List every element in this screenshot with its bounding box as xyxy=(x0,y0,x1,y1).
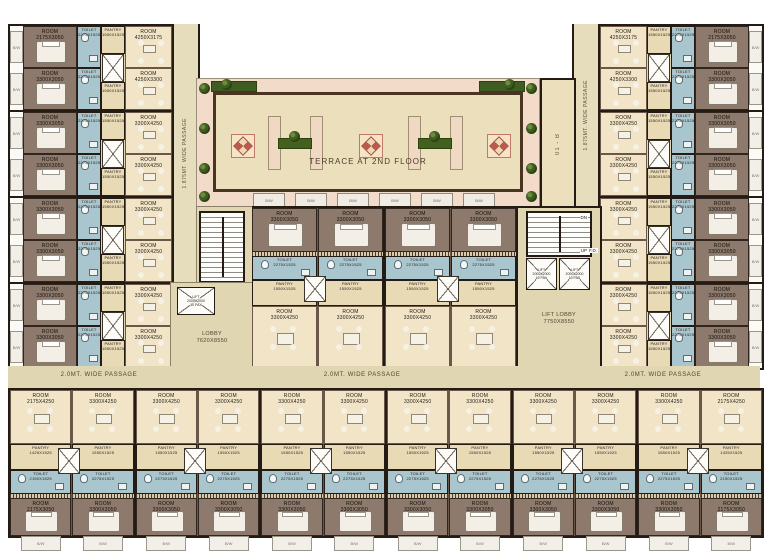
room-label: ROOM3300X3050 xyxy=(137,499,196,514)
fire-door-label: F.D. xyxy=(588,248,598,253)
balcony: B/W xyxy=(146,536,186,551)
plant-icon xyxy=(221,79,232,90)
pantry: PANTRY1550X1525 xyxy=(449,444,510,470)
toilet: TOILET2275X1525 xyxy=(72,470,133,494)
room: ROOM3300X3050 xyxy=(695,68,749,110)
balcony: B/W xyxy=(463,193,495,207)
passage-label-left: 2.0MT. WIDE PASSAGE xyxy=(61,372,138,378)
room-label: PANTRY1550X1525 xyxy=(102,27,124,37)
room-label: ROOM3300X4250 xyxy=(126,199,171,214)
room-column: ROOM3300X3050ROOM3300X3050 xyxy=(23,112,77,196)
room-label: PANTRY1550X1525 xyxy=(102,83,124,93)
shaft xyxy=(102,226,124,254)
pantry: PANTRY1550X1525 xyxy=(647,340,671,368)
balcony-column: B/WB/W xyxy=(10,112,23,196)
toilet-column: TOILET2275X1525TOILET2275X1525 xyxy=(77,284,101,368)
plant-icon xyxy=(504,79,515,90)
toilet: TOILET2275X1525 xyxy=(671,26,695,68)
shaft xyxy=(102,140,124,168)
room-label: ROOM3300X4250 xyxy=(126,113,171,128)
toilet: TOILET2275X1525 xyxy=(77,240,101,282)
balcony: B/W xyxy=(649,536,689,551)
room-label: ROOM3300X3050 xyxy=(24,199,76,214)
staircase-right: DN UP xyxy=(526,211,592,257)
room: ROOM3300X4250 xyxy=(125,198,172,240)
pantry: PANTRY1550X1525 xyxy=(575,444,636,470)
pantry-column: PANTRY1550X1525PANTRY1550X1525 xyxy=(647,26,671,110)
room-label: ROOM3300X3050 xyxy=(696,241,748,256)
wing-module: B/WB/WROOM3300X3050ROOM3300X3050TOILET22… xyxy=(600,198,762,284)
balcony: B/W xyxy=(523,536,563,551)
room: ROOM3300X3050 xyxy=(575,498,636,536)
room: ROOM3300X4250 xyxy=(513,390,574,444)
pantry: PANTRY1550X1525 xyxy=(647,112,671,140)
room-column: ROOM3300X4250ROOM3300X4250 xyxy=(600,112,647,196)
room: ROOM2175X3050 xyxy=(10,498,71,536)
room: ROOM3300X4250 xyxy=(600,326,647,368)
room-label: TOILET2275X1525 xyxy=(253,257,316,267)
toilet: TOILET2275X1525 xyxy=(671,68,695,110)
plant-icon xyxy=(199,83,210,94)
room: ROOM3300X3050 xyxy=(695,198,749,240)
shaft xyxy=(102,312,124,340)
room: ROOM3300X4250 xyxy=(136,390,197,444)
room: ROOM4250X3300 xyxy=(600,68,647,110)
balcony: B/W xyxy=(21,536,61,551)
room-label: PANTRY1550X1525 xyxy=(648,199,670,209)
plant-icon xyxy=(429,131,440,142)
pantry-column: PANTRY1550X1525PANTRY1550X1525 xyxy=(101,198,125,282)
room-label: ROOM3300X3050 xyxy=(199,499,258,514)
terrace: TERRACE AT 2ND FLOOR B/WB/WB/WB/WB/WB/W xyxy=(196,78,540,208)
room-label: PANTRY1550X1525 xyxy=(648,113,670,123)
room-label: TOILET2275X1525 xyxy=(576,471,635,481)
room-label: ROOM3300X4250 xyxy=(73,391,132,406)
toilet: TOILET2275X1525 xyxy=(671,112,695,154)
room: ROOM3300X3050 xyxy=(695,154,749,196)
room-label: ROOM3300X4250 xyxy=(601,241,646,256)
room: ROOM3300X3050 xyxy=(385,208,450,252)
lobby: LIFT 2000X2000 10 PAX LOBBY 7620X8550 xyxy=(170,282,254,368)
room-label: ROOM3300X4250 xyxy=(199,391,258,406)
passage-label-center: 2.0MT. WIDE PASSAGE xyxy=(324,372,401,378)
room-label: ROOM4250X3175 xyxy=(126,27,171,42)
room-column: ROOM3300X3050ROOM3300X3050 xyxy=(23,284,77,368)
wing-module: B/WB/WROOM2175X3050ROOM3300X3050TOILET22… xyxy=(10,26,172,112)
room-label: ROOM3300X3050 xyxy=(24,69,76,84)
left-wing: B/WB/WROOM2175X3050ROOM3300X3050TOILET22… xyxy=(8,24,174,370)
pantry: PANTRY1550X1525 xyxy=(101,284,125,312)
wing-module: B/WB/WROOM3300X3050ROOM3300X3050TOILET22… xyxy=(600,284,762,368)
pantry: PANTRY1550X1525 xyxy=(101,82,125,110)
room: ROOM3300X3050 xyxy=(23,154,77,196)
room-column: ROOM3300X3050ROOM3300X3050 xyxy=(695,112,749,196)
room-column: ROOM4250X3175ROOM4250X3300 xyxy=(125,26,172,110)
room-label: ROOM3300X4250 xyxy=(576,391,635,406)
room-label: ROOM3300X3050 xyxy=(450,499,509,514)
balcony: B/W xyxy=(295,193,327,207)
room-label: ROOM3300X4250 xyxy=(262,391,321,406)
lift-capacity: 10 PAX xyxy=(536,276,548,280)
balcony-column: B/WB/W xyxy=(749,284,762,368)
room: ROOM2175X3050 xyxy=(695,26,749,68)
balcony: B/W xyxy=(337,193,369,207)
pantry-column: PANTRY1550X1525PANTRY1550X1525 xyxy=(101,26,125,110)
room-label: PANTRY1550X1525 xyxy=(648,255,670,265)
guest-unit: ROOM3300X4250PANTRY1550X1525TOILET2275X1… xyxy=(261,390,323,536)
room: ROOM3300X3050 xyxy=(324,498,385,536)
room-label: TOILET2275X1525 xyxy=(672,285,694,295)
pantry: PANTRY1425X1525 xyxy=(701,444,762,470)
room: ROOM3300X4250 xyxy=(125,284,172,326)
room-column: ROOM2175X3050ROOM3300X3050 xyxy=(695,26,749,110)
balcony-column: B/WB/W xyxy=(10,26,23,110)
shaft xyxy=(687,448,709,474)
plant-icon xyxy=(199,163,210,174)
room-label: PANTRY1550X1525 xyxy=(648,341,670,351)
toilet: TOILET2275X1525 xyxy=(449,470,510,494)
toilet: TOILET2150X1525 xyxy=(701,470,762,494)
room-label: TOILET2275X1525 xyxy=(78,327,100,337)
lift-lobby-title: LIFT LOBBY xyxy=(518,312,600,319)
pantry: PANTRY1550X1525 xyxy=(647,254,671,282)
passage-label-right: 2.0MT. WIDE PASSAGE xyxy=(625,372,702,378)
room-label: PANTRY1550X1525 xyxy=(102,341,124,351)
balcony: B/W xyxy=(10,159,23,191)
balcony: B/W xyxy=(334,536,374,551)
passage-vertical-right-label: 1.875MT. WIDE PASSAGE xyxy=(583,80,589,150)
room: ROOM3300X3050 xyxy=(136,498,197,536)
room: ROOM3300X4250 xyxy=(198,390,259,444)
room-label: ROOM3300X3050 xyxy=(262,499,321,514)
toilet: TOILET2275X1525 xyxy=(324,470,385,494)
toilet-column: TOILET2275X1525TOILET2275X1525 xyxy=(77,112,101,196)
room-label: ROOM3300X4250 xyxy=(601,199,646,214)
balcony: B/W xyxy=(749,289,762,321)
room-label: ROOM4250X3300 xyxy=(126,69,171,84)
room-label: ROOM3300X4250 xyxy=(639,391,698,406)
balcony: B/W xyxy=(379,193,411,207)
plant-icon xyxy=(526,163,537,174)
room: ROOM3300X4250 xyxy=(324,390,385,444)
pantry: PANTRY1550X1525 xyxy=(647,198,671,226)
room-label: TOILET2275X1525 xyxy=(672,69,694,79)
guest-unit: ROOM3300X3050TOILET2275X1525PANTRY1550X1… xyxy=(451,208,516,368)
toilet-column: TOILET2275X1525TOILET2275X1525 xyxy=(77,26,101,110)
room-label: ROOM3300X4250 xyxy=(514,391,573,406)
pantry: PANTRY1550X1525 xyxy=(324,444,385,470)
pantry-column: PANTRY1550X1525PANTRY1550X1525 xyxy=(101,112,125,196)
pantry: PANTRY1550X1525 xyxy=(318,280,383,306)
room-label: TOILET2275X1525 xyxy=(78,113,100,123)
room-label: ROOM3300X4250 xyxy=(253,307,316,322)
room-label: ROOM2175X4250 xyxy=(11,391,70,406)
toilet-column: TOILET2275X1525TOILET2275X1525 xyxy=(671,284,695,368)
room-label: ROOM3300X4250 xyxy=(452,307,515,322)
floor-plan-sheet: 1.875MT. WIDE PASSAGE 1.875MT. WIDE PASS… xyxy=(0,0,768,552)
room-label: PANTRY1550X1525 xyxy=(648,169,670,179)
room: ROOM3300X3050 xyxy=(318,208,383,252)
toilet: TOILET2275X1525 xyxy=(77,26,101,68)
room-label: ROOM3300X4250 xyxy=(126,241,171,256)
shaft xyxy=(648,226,670,254)
room: ROOM2175X4250 xyxy=(701,390,762,444)
room: ROOM3300X3050 xyxy=(638,498,699,536)
room: ROOM3300X4250 xyxy=(600,112,647,154)
room: ROOM3300X3050 xyxy=(513,498,574,536)
room-label: ROOM3300X4250 xyxy=(388,391,447,406)
room-label: ROOM3300X4250 xyxy=(137,391,196,406)
balcony: B/W xyxy=(749,159,762,191)
room-label: ROOM3300X3050 xyxy=(696,327,748,342)
guest-unit: ROOM3300X3050TOILET2275X1525PANTRY1550X1… xyxy=(318,208,385,368)
room-label: TOILET2275X1525 xyxy=(452,257,515,267)
annex-01b: 01 - B xyxy=(540,78,576,210)
pantry: PANTRY1550X1525 xyxy=(101,254,125,282)
room: ROOM3300X3050 xyxy=(695,112,749,154)
lift-capacity: 10 PAX xyxy=(569,276,581,280)
balcony: B/W xyxy=(253,193,285,207)
guest-unit: ROOM3300X4250PANTRY1550X1525TOILET2275X1… xyxy=(198,390,261,536)
annex-label: 01 - B xyxy=(555,133,561,155)
wing-module: B/WB/WROOM2175X3050ROOM3300X3050TOILET22… xyxy=(600,26,762,112)
room-label: TOILET2275X1525 xyxy=(199,471,258,481)
balcony: B/W xyxy=(749,117,762,149)
pantry: PANTRY1550X1525 xyxy=(451,280,516,306)
room: ROOM3300X4250 xyxy=(125,240,172,282)
wing-module: B/WB/WROOM3300X3050ROOM3300X3050TOILET22… xyxy=(600,112,762,198)
room-label: ROOM3300X4250 xyxy=(319,307,382,322)
shaft xyxy=(648,312,670,340)
lobby-dim: 7620X8550 xyxy=(171,338,253,345)
room-label: PANTRY1550X1525 xyxy=(73,445,132,455)
guest-unit: ROOM3300X4250PANTRY1550X1525TOILET2275X1… xyxy=(387,390,449,536)
room-label: TOILET2275X1525 xyxy=(672,199,694,209)
room-label: ROOM3300X3050 xyxy=(386,209,449,224)
room: ROOM3300X4250 xyxy=(600,154,647,196)
pantry: PANTRY1550X1525 xyxy=(647,82,671,110)
room-label: PANTRY1550X1525 xyxy=(319,281,382,291)
wing-module: B/WB/WROOM3300X3050ROOM3300X3050TOILET22… xyxy=(10,112,172,198)
balcony: B/W xyxy=(460,536,500,551)
room: ROOM3300X4250 xyxy=(125,326,172,368)
room: ROOM3300X3050 xyxy=(451,208,516,252)
room-label: ROOM3300X4250 xyxy=(450,391,509,406)
pantry: PANTRY1550X1525 xyxy=(101,198,125,226)
room: ROOM3300X3050 xyxy=(72,498,133,536)
room-label: ROOM3300X3050 xyxy=(388,499,447,514)
toilet-column: TOILET2275X1525TOILET2275X1525 xyxy=(671,112,695,196)
room: ROOM3300X4250 xyxy=(387,390,448,444)
balcony: B/W xyxy=(749,245,762,277)
lobby-label: LOBBY 7620X8550 xyxy=(171,331,253,345)
room: ROOM3300X4250 xyxy=(125,112,172,154)
room-label: ROOM3300X3050 xyxy=(696,199,748,214)
right-wing: B/WB/WROOM2175X3050ROOM3300X3050TOILET22… xyxy=(598,24,764,370)
room-label: ROOM3300X4250 xyxy=(601,113,646,128)
pantry: PANTRY1550X1525 xyxy=(647,284,671,312)
guest-unit: ROOM2175X4250PANTRY1425X1525TOILET2150X1… xyxy=(10,390,72,536)
planter-bed xyxy=(479,81,525,92)
shaft xyxy=(435,448,457,474)
room-label: TOILET2275X1525 xyxy=(78,69,100,79)
pantry: PANTRY1550X1525 xyxy=(101,168,125,196)
room-label: TOILET2275X1525 xyxy=(672,113,694,123)
shaft xyxy=(437,276,459,302)
room-column: ROOM2175X3050ROOM3300X3050 xyxy=(23,26,77,110)
balcony: B/W xyxy=(209,536,249,551)
wing-module: B/WB/WROOM3300X3050ROOM3300X3050TOILET22… xyxy=(10,284,172,368)
lift-lobby-dim: 7750X8550 xyxy=(518,319,600,326)
guest-unit: ROOM3300X4250PANTRY1550X1525TOILET2275X1… xyxy=(575,390,638,536)
room-label: PANTRY1550X1525 xyxy=(576,445,635,455)
toilet-column: TOILET2275X1525TOILET2275X1525 xyxy=(671,26,695,110)
lift-capacity: 10 PAX xyxy=(190,303,202,307)
room-label: ROOM4250X3175 xyxy=(601,27,646,42)
room-label: ROOM4250X3300 xyxy=(601,69,646,84)
lift-right-1: LIFT 2000X2000 10 PAX xyxy=(526,258,557,290)
room-label: ROOM3300X4250 xyxy=(601,155,646,170)
room-label: TOILET2275X1525 xyxy=(78,199,100,209)
passage-vertical-right: 1.875MT. WIDE PASSAGE xyxy=(572,24,600,206)
room: ROOM3300X3050 xyxy=(252,208,317,252)
room: ROOM3300X3050 xyxy=(695,240,749,282)
room-label: ROOM3300X3050 xyxy=(696,113,748,128)
guest-unit: ROOM3300X3050TOILET2275X1525PANTRY1550X1… xyxy=(385,208,451,368)
room-label: ROOM3300X3050 xyxy=(452,209,515,224)
room-label: PANTRY1550X1525 xyxy=(102,169,124,179)
terrace-medallion xyxy=(231,134,255,158)
balcony: B/W xyxy=(749,31,762,63)
room-label: ROOM3300X3050 xyxy=(24,155,76,170)
room-column: ROOM3300X4250ROOM3300X4250 xyxy=(600,198,647,282)
toilet: TOILET2275X1525 xyxy=(671,326,695,368)
terrace-floor: TERRACE AT 2ND FLOOR xyxy=(213,92,523,192)
room-label: ROOM3300X4250 xyxy=(325,391,384,406)
room-label: PANTRY1550X1525 xyxy=(199,445,258,455)
shaft xyxy=(561,448,583,474)
lift-right-2: LIFT 2000X2000 10 PAX xyxy=(559,258,590,290)
plant-icon xyxy=(526,83,537,94)
room: ROOM3300X4250 xyxy=(600,240,647,282)
center-block: ROOM3300X3050TOILET2275X1525PANTRY1550X1… xyxy=(252,206,516,370)
room: ROOM3300X4250 xyxy=(385,306,450,368)
room-label: TOILET2275X1525 xyxy=(78,155,100,165)
toilet: TOILET2275X1525 xyxy=(671,154,695,196)
room-label: ROOM3300X3050 xyxy=(576,499,635,514)
balcony: B/W xyxy=(10,289,23,321)
room: ROOM4250X3175 xyxy=(600,26,647,68)
room-label: ROOM2175X3050 xyxy=(24,27,76,42)
guest-unit: ROOM3300X3050TOILET2275X1525PANTRY1550X1… xyxy=(252,208,318,368)
balcony: B/W xyxy=(749,331,762,363)
room-label: TOILET2275X1525 xyxy=(78,27,100,37)
balcony: B/W xyxy=(421,193,453,207)
room-label: ROOM3300X3050 xyxy=(73,499,132,514)
toilet: TOILET2275X1525 xyxy=(77,284,101,326)
room-label: TOILET2275X1525 xyxy=(450,471,509,481)
room: ROOM3300X4250 xyxy=(72,390,133,444)
pantry: PANTRY1550X1525 xyxy=(647,26,671,54)
balcony-column: B/WB/W xyxy=(10,198,23,282)
room-label: PANTRY1550X1525 xyxy=(325,445,384,455)
room-label: TOILET2275X1525 xyxy=(73,471,132,481)
balcony: B/W xyxy=(398,536,438,551)
toilet-column: TOILET2275X1525TOILET2275X1525 xyxy=(671,198,695,282)
pantry: PANTRY1550X1525 xyxy=(101,340,125,368)
shaft xyxy=(648,54,670,82)
plant-icon xyxy=(526,123,537,134)
room-label: ROOM3300X3050 xyxy=(325,499,384,514)
lift-lobby-block: DN UP F.D. LIFT 2000X2000 10 PAX LIFT 20… xyxy=(516,206,602,370)
room-label: PANTRY1550X1525 xyxy=(648,83,670,93)
room-label: TOILET2275X1525 xyxy=(672,155,694,165)
room: ROOM3300X3050 xyxy=(23,240,77,282)
room-label: PANTRY1550X1525 xyxy=(648,27,670,37)
room: ROOM2175X3050 xyxy=(23,26,77,68)
room: ROOM3300X3050 xyxy=(23,68,77,110)
toilet: TOILET2275X1525 xyxy=(671,284,695,326)
room: ROOM3300X3050 xyxy=(198,498,259,536)
room-label: ROOM3300X4250 xyxy=(126,285,171,300)
room-label: ROOM3300X3050 xyxy=(696,155,748,170)
room-label: PANTRY1550X1525 xyxy=(102,199,124,209)
room: ROOM3300X4250 xyxy=(575,390,636,444)
stair-up-label: UP xyxy=(580,248,588,253)
terrace-label: TERRACE AT 2ND FLOOR xyxy=(216,157,520,166)
room-label: ROOM2175X3050 xyxy=(11,499,70,514)
terrace-medallion xyxy=(359,134,383,158)
room-column: ROOM3300X4250ROOM3300X4250 xyxy=(125,112,172,196)
room-label: ROOM2175X3050 xyxy=(702,499,761,514)
room: ROOM3300X4250 xyxy=(125,154,172,196)
room-label: PANTRY1550X1525 xyxy=(648,285,670,295)
pantry: PANTRY1550X1525 xyxy=(647,168,671,196)
guest-unit: ROOM3300X4250PANTRY1550X1525TOILET2275X1… xyxy=(72,390,135,536)
shaft xyxy=(184,448,206,474)
room-label: ROOM2175X3050 xyxy=(696,27,748,42)
room-column: ROOM3300X4250ROOM3300X4250 xyxy=(125,284,172,368)
room: ROOM3300X4250 xyxy=(638,390,699,444)
guest-unit: ROOM3300X4250PANTRY1550X1525TOILET2275X1… xyxy=(136,390,198,536)
room: ROOM3300X3050 xyxy=(23,198,77,240)
balcony: B/W xyxy=(83,536,123,551)
pantry: PANTRY1550X1525 xyxy=(101,26,125,54)
shaft xyxy=(304,276,326,302)
toilet: TOILET2275X1525 xyxy=(77,326,101,368)
room-label: PANTRY1550X1525 xyxy=(102,285,124,295)
room: ROOM4250X3175 xyxy=(125,26,172,68)
toilet: TOILET2275X1525 xyxy=(671,198,695,240)
plant-icon xyxy=(199,191,210,202)
balcony: B/W xyxy=(711,536,751,551)
balcony-column: B/WB/W xyxy=(749,112,762,196)
room-column: ROOM3300X4250ROOM3300X4250 xyxy=(600,284,647,368)
toilet: TOILET2275X1525 xyxy=(318,256,383,280)
room: ROOM3300X3050 xyxy=(695,326,749,368)
wing-module: B/WB/WROOM3300X3050ROOM3300X3050TOILET22… xyxy=(10,198,172,284)
room: ROOM4250X3300 xyxy=(125,68,172,110)
room-label: ROOM3300X3050 xyxy=(696,285,748,300)
toilet: TOILET2275X1525 xyxy=(671,240,695,282)
room-label: ROOM3300X3050 xyxy=(514,499,573,514)
plant-icon xyxy=(199,123,210,134)
room-label: TOILET2150X1525 xyxy=(702,471,761,481)
balcony: B/W xyxy=(272,536,312,551)
room-column: ROOM4250X3175ROOM4250X3300 xyxy=(600,26,647,110)
room-label: ROOM3300X4250 xyxy=(601,285,646,300)
room: ROOM3300X4250 xyxy=(451,306,516,368)
